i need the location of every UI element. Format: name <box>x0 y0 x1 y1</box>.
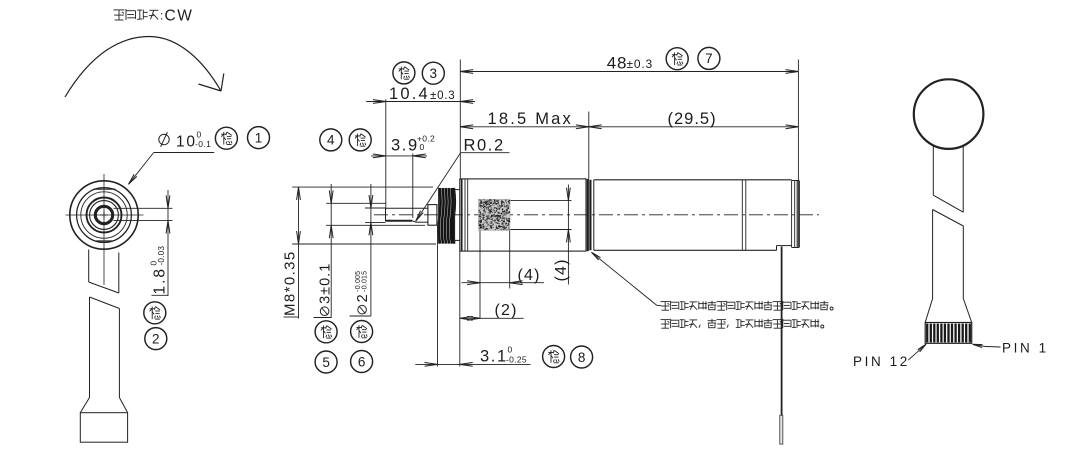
svg-text:1.8: 1.8 <box>152 267 169 295</box>
svg-text:7: 7 <box>705 51 713 66</box>
svg-text:CW: CW <box>165 8 194 25</box>
svg-text:(4): (4) <box>518 267 541 284</box>
svg-text:M8*0.35: M8*0.35 <box>282 250 299 316</box>
svg-text:0: 0 <box>508 345 513 355</box>
svg-text:2: 2 <box>355 293 371 302</box>
svg-text:0: 0 <box>197 130 202 140</box>
svg-text::: : <box>160 9 163 23</box>
svg-text:5: 5 <box>322 355 330 370</box>
svg-text:PIN 1: PIN 1 <box>1002 341 1049 356</box>
svg-text:3.9: 3.9 <box>391 137 419 155</box>
svg-text:-0.03: -0.03 <box>157 246 166 266</box>
svg-text:10.4: 10.4 <box>389 85 430 103</box>
svg-text:18.5 Max: 18.5 Max <box>488 110 573 128</box>
svg-text:-0.015: -0.015 <box>362 271 369 292</box>
svg-text:R0.2: R0.2 <box>464 137 505 155</box>
svg-text:(2): (2) <box>495 302 518 319</box>
svg-text:0: 0 <box>420 142 425 152</box>
svg-text:6: 6 <box>358 354 366 369</box>
svg-text:3.1: 3.1 <box>480 348 508 366</box>
svg-text:3±0.1: 3±0.1 <box>318 263 334 304</box>
svg-text:3: 3 <box>430 66 438 81</box>
svg-text:±0.3: ±0.3 <box>430 90 456 102</box>
svg-text:48: 48 <box>607 54 628 73</box>
svg-text:(4): (4) <box>553 258 570 281</box>
svg-text:10: 10 <box>176 133 197 150</box>
svg-text:(29.5): (29.5) <box>668 110 717 128</box>
svg-text:±0.3: ±0.3 <box>627 57 653 71</box>
svg-text:-0.25: -0.25 <box>506 355 527 365</box>
svg-text:1: 1 <box>255 130 263 145</box>
svg-text:-0.1: -0.1 <box>195 139 211 149</box>
svg-text:PIN 12: PIN 12 <box>853 354 910 369</box>
svg-text:8: 8 <box>578 350 586 365</box>
svg-text:4: 4 <box>327 133 335 148</box>
svg-text:2: 2 <box>152 331 160 346</box>
